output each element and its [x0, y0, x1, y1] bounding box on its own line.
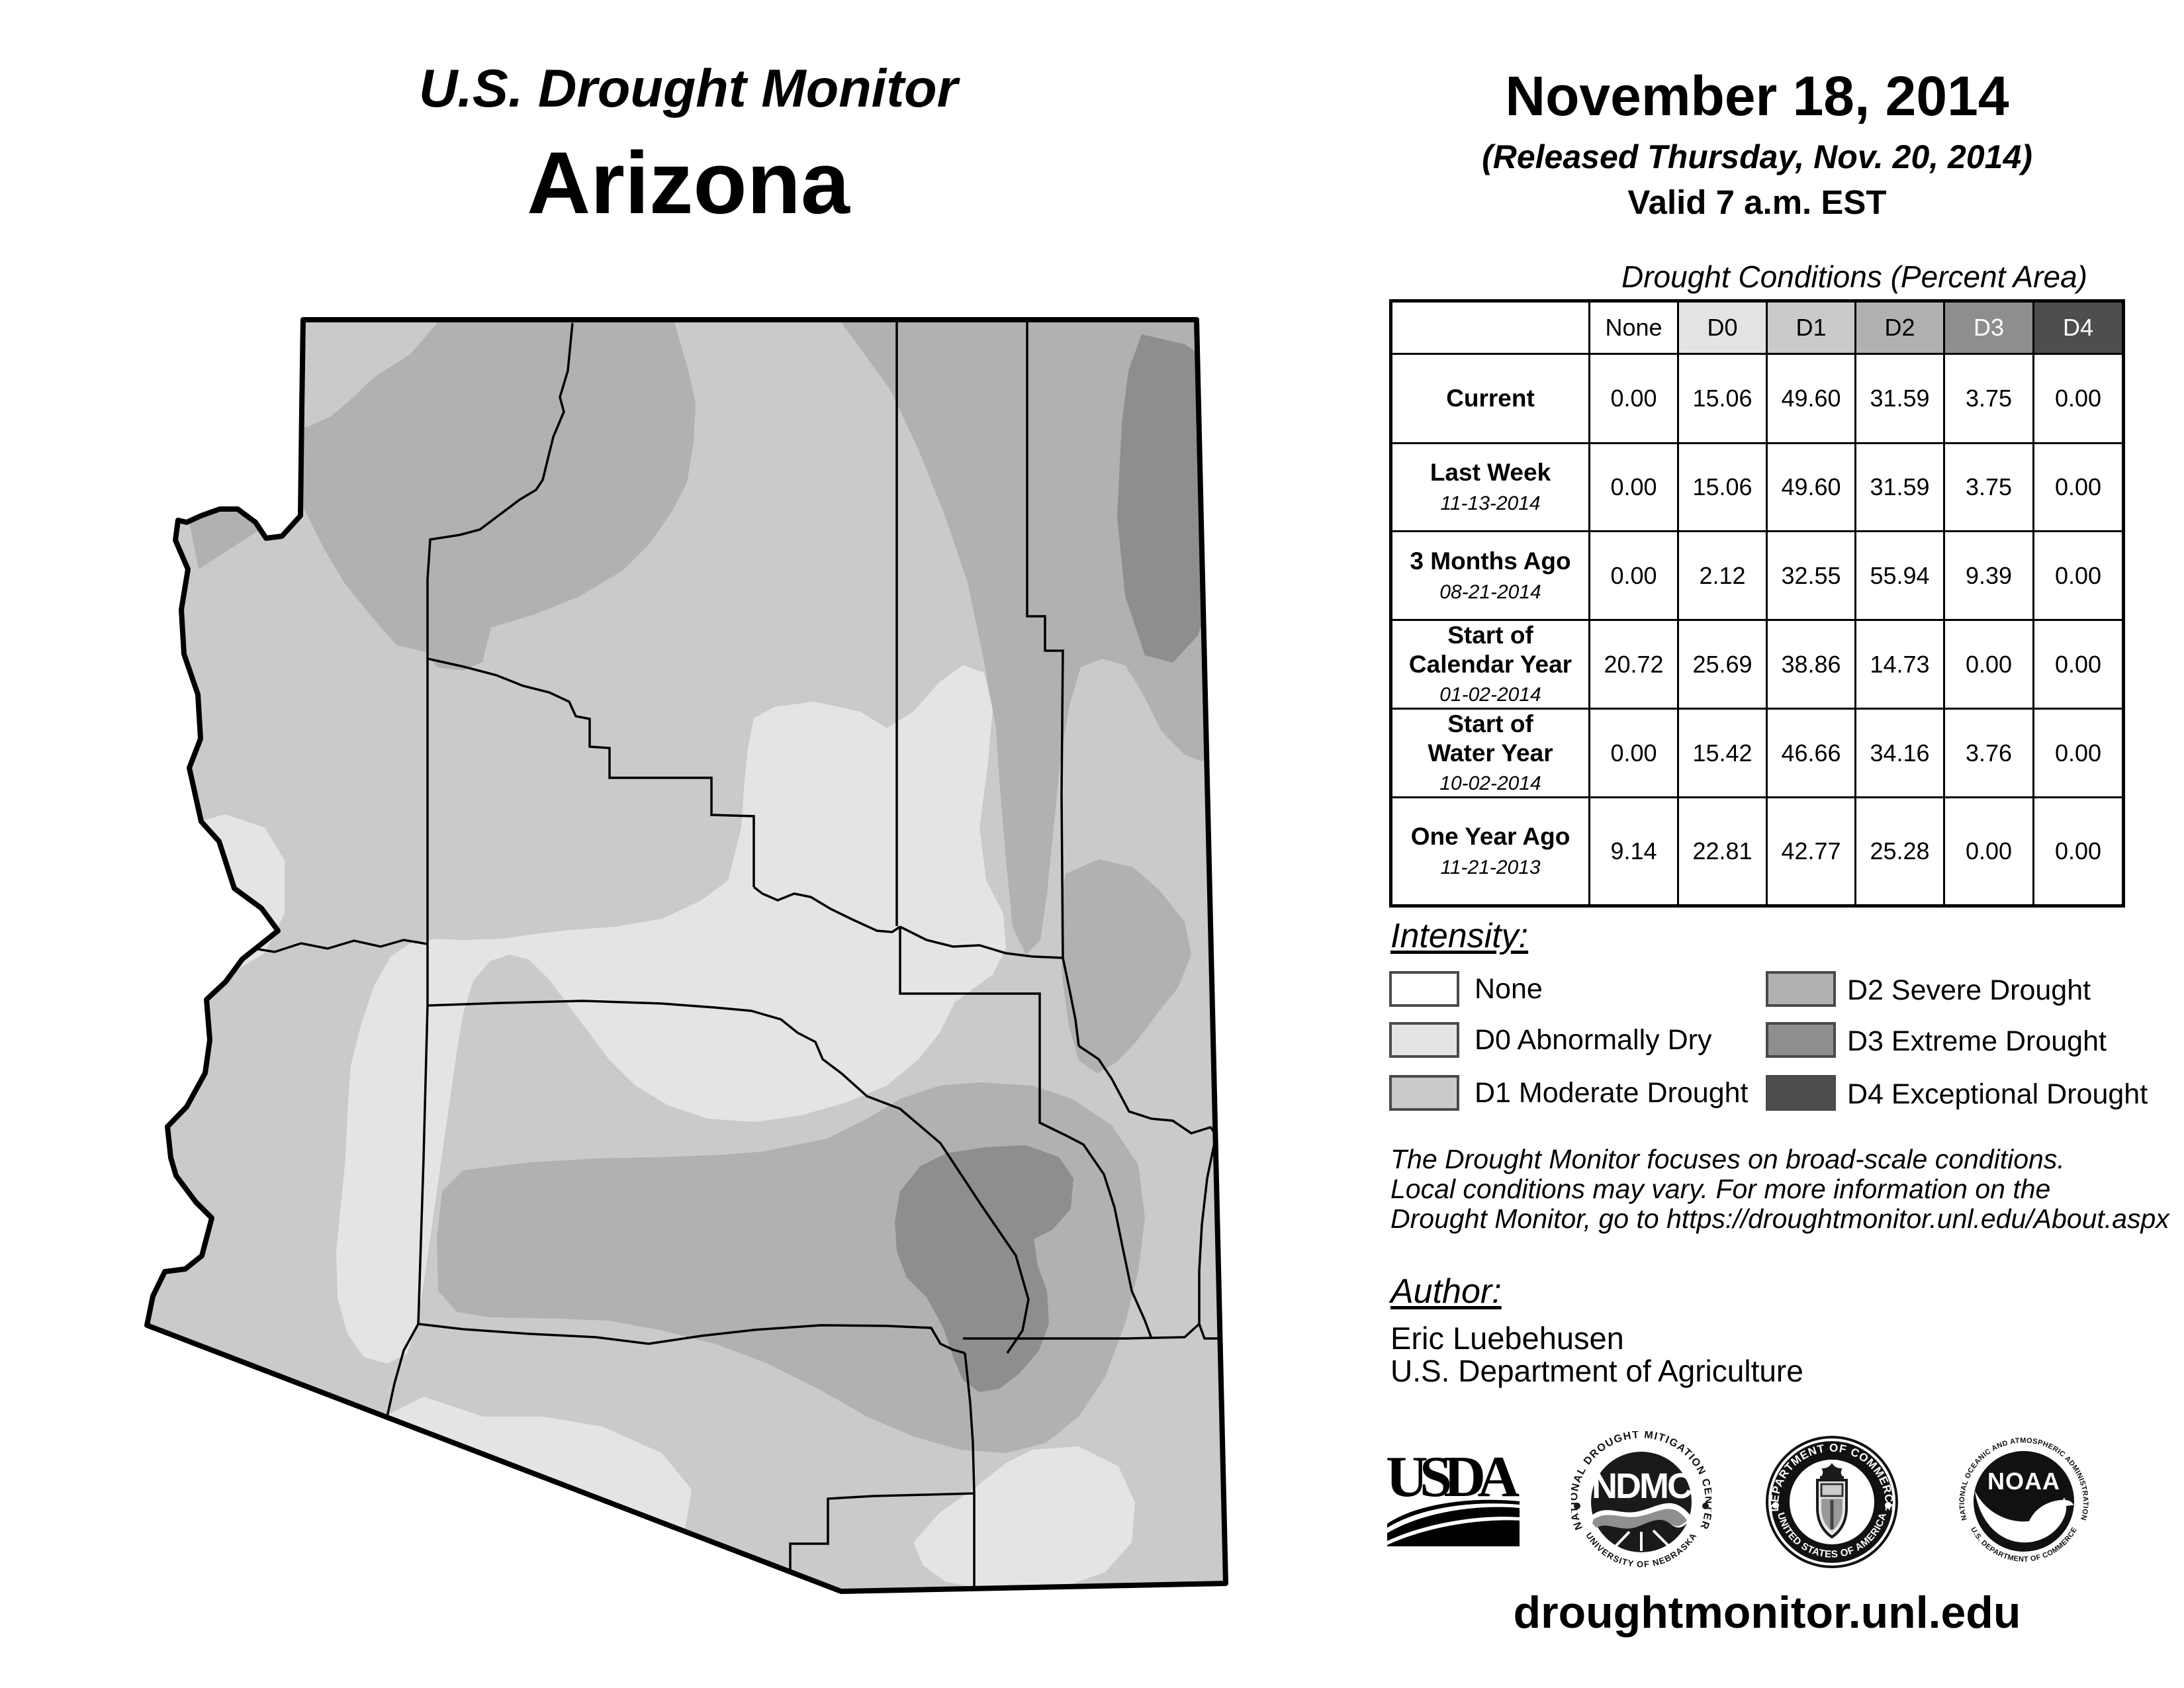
svg-text:NOAA: NOAA [1987, 1468, 2060, 1495]
svg-text:NDMC: NDMC [1592, 1466, 1692, 1506]
